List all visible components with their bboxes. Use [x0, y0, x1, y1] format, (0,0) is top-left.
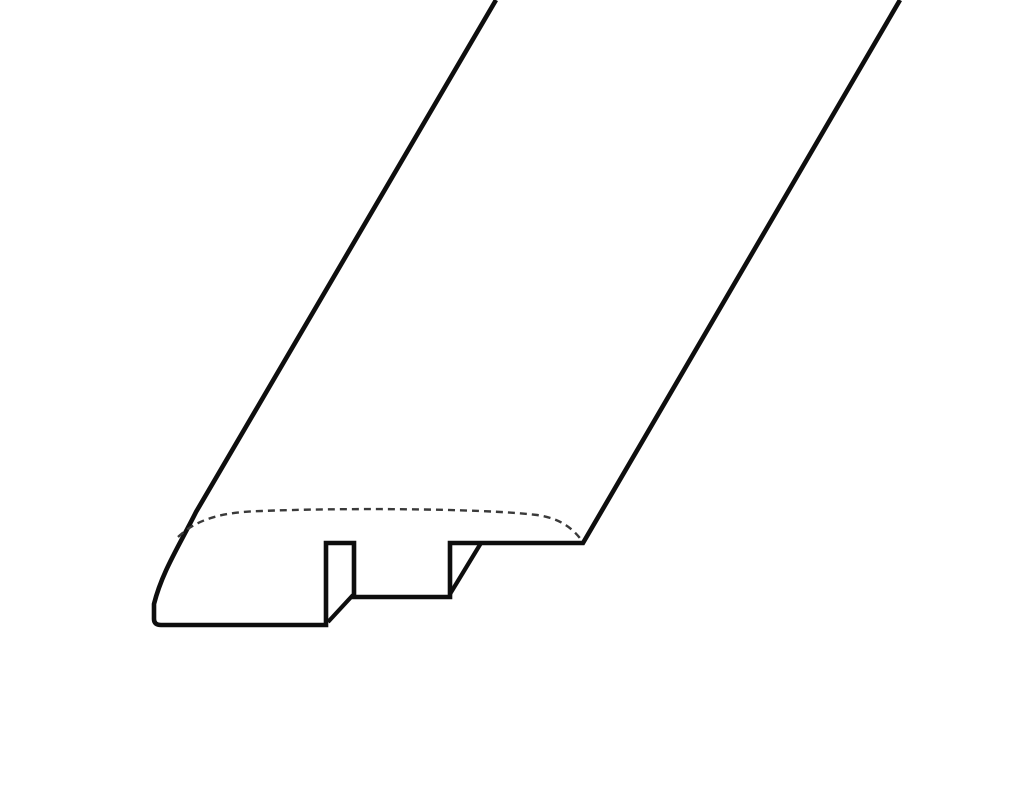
line-drawing-canvas: [0, 0, 1024, 787]
groove-left-receding-edge: [328, 595, 353, 622]
rounded-top-hidden-edge: [178, 509, 582, 541]
molding-diagram-svg: [0, 0, 1024, 787]
molding-outline: [154, 0, 900, 625]
groove-right-receding-edge: [450, 543, 481, 594]
